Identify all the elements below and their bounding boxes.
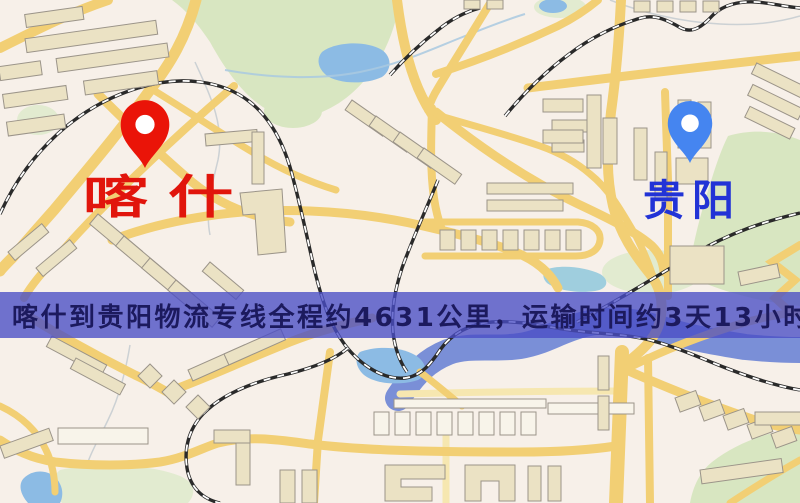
route-info-banner: 喀什到贵阳物流专线全程约4631公里，运输时间约3天13小时. bbox=[0, 292, 800, 338]
destination-city-label: 贵阳 bbox=[643, 180, 741, 222]
route-info-text: 喀什到贵阳物流专线全程约4631公里，运输时间约3天13小时. bbox=[0, 297, 800, 334]
map-image bbox=[0, 0, 800, 503]
map-screenshot: 喀什 贵阳 喀什到贵阳物流专线全程约4631公里，运输时间约3天13小时. bbox=[0, 0, 800, 503]
origin-city-label: 喀什 bbox=[83, 174, 253, 220]
